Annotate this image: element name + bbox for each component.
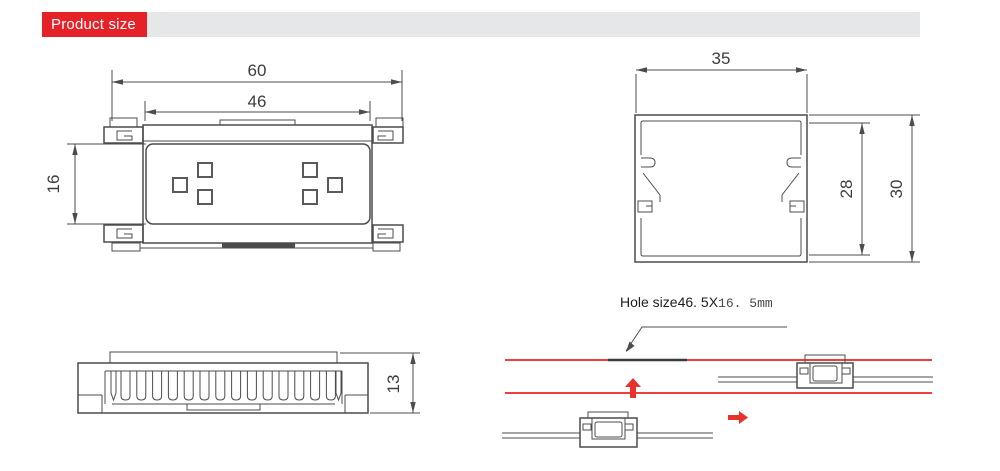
front-dimension-46: 46 (145, 92, 370, 121)
dim-label-13: 13 (384, 375, 403, 394)
slide-right-arrow (728, 411, 748, 424)
profile-view-drawing: 13 (55, 340, 440, 435)
dim-label-46: 46 (248, 92, 267, 111)
front-terminal-squares (173, 163, 342, 204)
section-dimension-35: 35 (636, 49, 807, 113)
product-size-panel: Product size 60 46 16 (0, 0, 1000, 471)
dim-label-16: 16 (44, 175, 63, 194)
dim-label-60: 60 (248, 61, 267, 80)
profile-dimension-13: 13 (340, 353, 420, 413)
section-header-bar: Product size (42, 12, 920, 37)
front-dimension-16: 16 (44, 144, 146, 224)
section-dimension-28: 28 (809, 123, 870, 255)
hole-size-label-mono: 16. 5mm (718, 296, 773, 311)
module-before-insert (502, 412, 713, 447)
section-title-badge: Product size (42, 12, 147, 37)
dim-label-35: 35 (712, 49, 731, 68)
front-corner-clips (104, 118, 403, 251)
install-view-drawing (495, 320, 950, 460)
dim-label-30: 30 (887, 180, 906, 199)
section-view-drawing: 35 2 (615, 40, 950, 280)
front-view-drawing: 60 46 16 (40, 55, 420, 265)
bottom-tab (222, 243, 295, 248)
leader-arrowhead (626, 342, 635, 353)
insert-up-arrow (625, 378, 641, 398)
top-plate (110, 352, 337, 363)
section-title: Product size (51, 16, 136, 33)
left-clip (638, 158, 660, 212)
dim-label-28: 28 (837, 180, 856, 199)
heatsink-fins (111, 371, 341, 400)
right-clip (782, 158, 804, 212)
hole-size-label-sans: Hole size46. 5X (620, 294, 718, 310)
bottom-center-tab (187, 404, 260, 410)
section-dimension-30: 30 (809, 115, 920, 262)
hole-leader (626, 327, 787, 352)
section-body (635, 115, 807, 262)
hole-size-label: Hole size46. 5X16. 5mm (620, 294, 773, 311)
